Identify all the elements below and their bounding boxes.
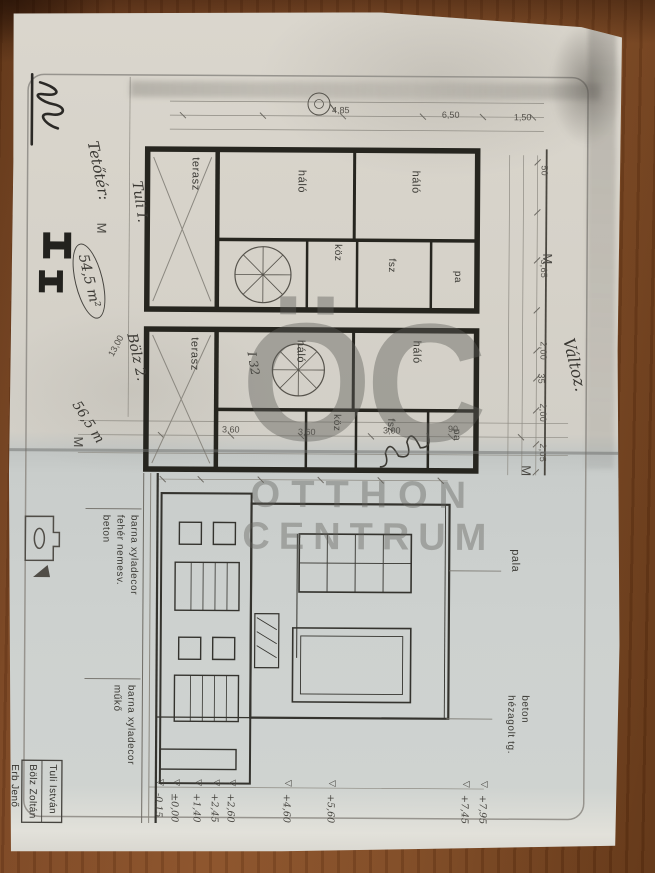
dim-mid-3: 3,00: [383, 425, 401, 435]
signature-squiggle: [32, 74, 63, 144]
room-label-halo-lower-2: háló: [410, 341, 422, 364]
dim-mid-1: 3,60: [222, 424, 240, 434]
level-value-3: +5,60: [325, 794, 336, 823]
dim-left-3: 1,50: [514, 112, 532, 122]
room-label-halo-upper-1: háló: [295, 170, 307, 193]
room-label-halo-upper-2: háló: [409, 171, 421, 194]
level-value-5: +2,60: [225, 793, 236, 822]
room-label-pa-upper: pa: [452, 271, 463, 283]
room-label-fsz-upper: fsz: [386, 258, 397, 273]
dim-top-6: 2,05: [538, 443, 548, 462]
level-triangle-icon: ▽: [227, 779, 238, 786]
blueprint-paper: terasz háló háló köz fsz pa terasz háló …: [5, 10, 624, 856]
material-a-line2: fehér nemesv.: [114, 515, 125, 586]
level-value-6: +2,45: [209, 793, 220, 822]
stamp-icon: [25, 516, 59, 576]
dim-mid-4: 90: [448, 424, 458, 434]
material-b-line1: barna xyladecor: [125, 685, 136, 765]
room-label-terasz-lower: terasz: [188, 337, 200, 371]
dim-left-1: 4,85: [332, 105, 350, 115]
level-triangle-icon: ▽: [211, 779, 222, 786]
level-value-7: +1,40: [191, 793, 202, 822]
level-triangle-icon: ▽: [171, 779, 182, 786]
material-a-line3: beton: [100, 515, 111, 543]
plan-upper-spiral-stair: [235, 247, 291, 303]
level-triangle-icon: ▽: [327, 780, 338, 787]
level-triangle-icon: ▽: [461, 781, 472, 788]
dim-left-2: 6,50: [442, 110, 460, 120]
plans-top-border-line: [545, 149, 547, 475]
room-label-halo-lower-1: háló: [294, 340, 306, 363]
elevation-label-beton-2: hézagolt tg.: [505, 695, 516, 754]
level-triangle-icon: ▽: [193, 779, 204, 786]
elevation-label-pala: pala: [509, 549, 521, 572]
level-triangle-icon: ▽: [283, 780, 294, 787]
section-marker-icons: [39, 232, 71, 292]
level-value-1: +7,95: [477, 795, 488, 824]
elevation-linework: [149, 473, 502, 825]
drawing-canvas: terasz háló háló köz fsz pa terasz háló …: [10, 16, 601, 832]
photo-of-floor-plan: terasz háló háló köz fsz pa terasz háló …: [0, 0, 655, 873]
dim-top-1: 50: [540, 165, 550, 176]
dim-top-5: 2,00: [538, 403, 548, 422]
plan-lower-terrace-hatch: [152, 335, 211, 463]
dim-top-2: 3,65: [539, 259, 549, 278]
titleblock-name-3: Erb Jenő: [9, 764, 20, 807]
scale-mark-1: M: [94, 223, 109, 234]
dim-mid-2: 3,60: [298, 427, 316, 437]
material-b-line2: műkő: [111, 685, 122, 712]
room-label-koz-upper: köz: [332, 244, 343, 261]
dim-top-4: 35: [536, 373, 546, 384]
material-a-line1: barna xyladecor: [128, 515, 139, 595]
room-label-terasz-upper: terasz: [189, 157, 201, 191]
dim-top-3: 2,00: [538, 341, 548, 360]
room-label-koz-lower: köz: [331, 414, 342, 431]
level-triangle-icon: ▽: [155, 779, 166, 786]
elevation-label-beton-1: beton: [519, 695, 530, 723]
level-triangle-icon: ▽: [479, 781, 490, 788]
drawing-rotated-wrap: terasz háló háló köz fsz pa terasz háló …: [10, 16, 601, 832]
scale-mark-2: M: [71, 437, 86, 448]
level-value-4: +4,60: [281, 794, 292, 823]
scale-mark-4: M: [519, 465, 534, 476]
level-value-8: ±0,00: [169, 793, 180, 822]
plan-upper-terrace-hatch: [153, 157, 212, 301]
titleblock-name-2: Bölz Zoltán: [27, 764, 38, 819]
level-value-2: +7,45: [459, 795, 470, 824]
level-value-9: -0,15: [153, 793, 164, 817]
titleblock-name-1: Tuli István: [47, 764, 58, 814]
